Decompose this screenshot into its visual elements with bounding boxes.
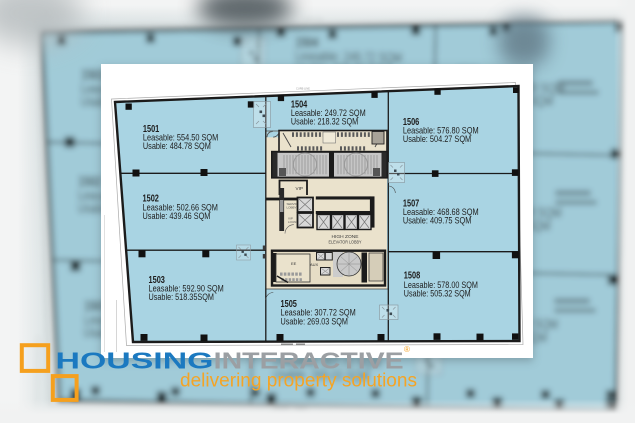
svg-text:®: ® <box>404 345 410 354</box>
svg-text:delivering property solutions: delivering property solutions <box>180 371 417 392</box>
